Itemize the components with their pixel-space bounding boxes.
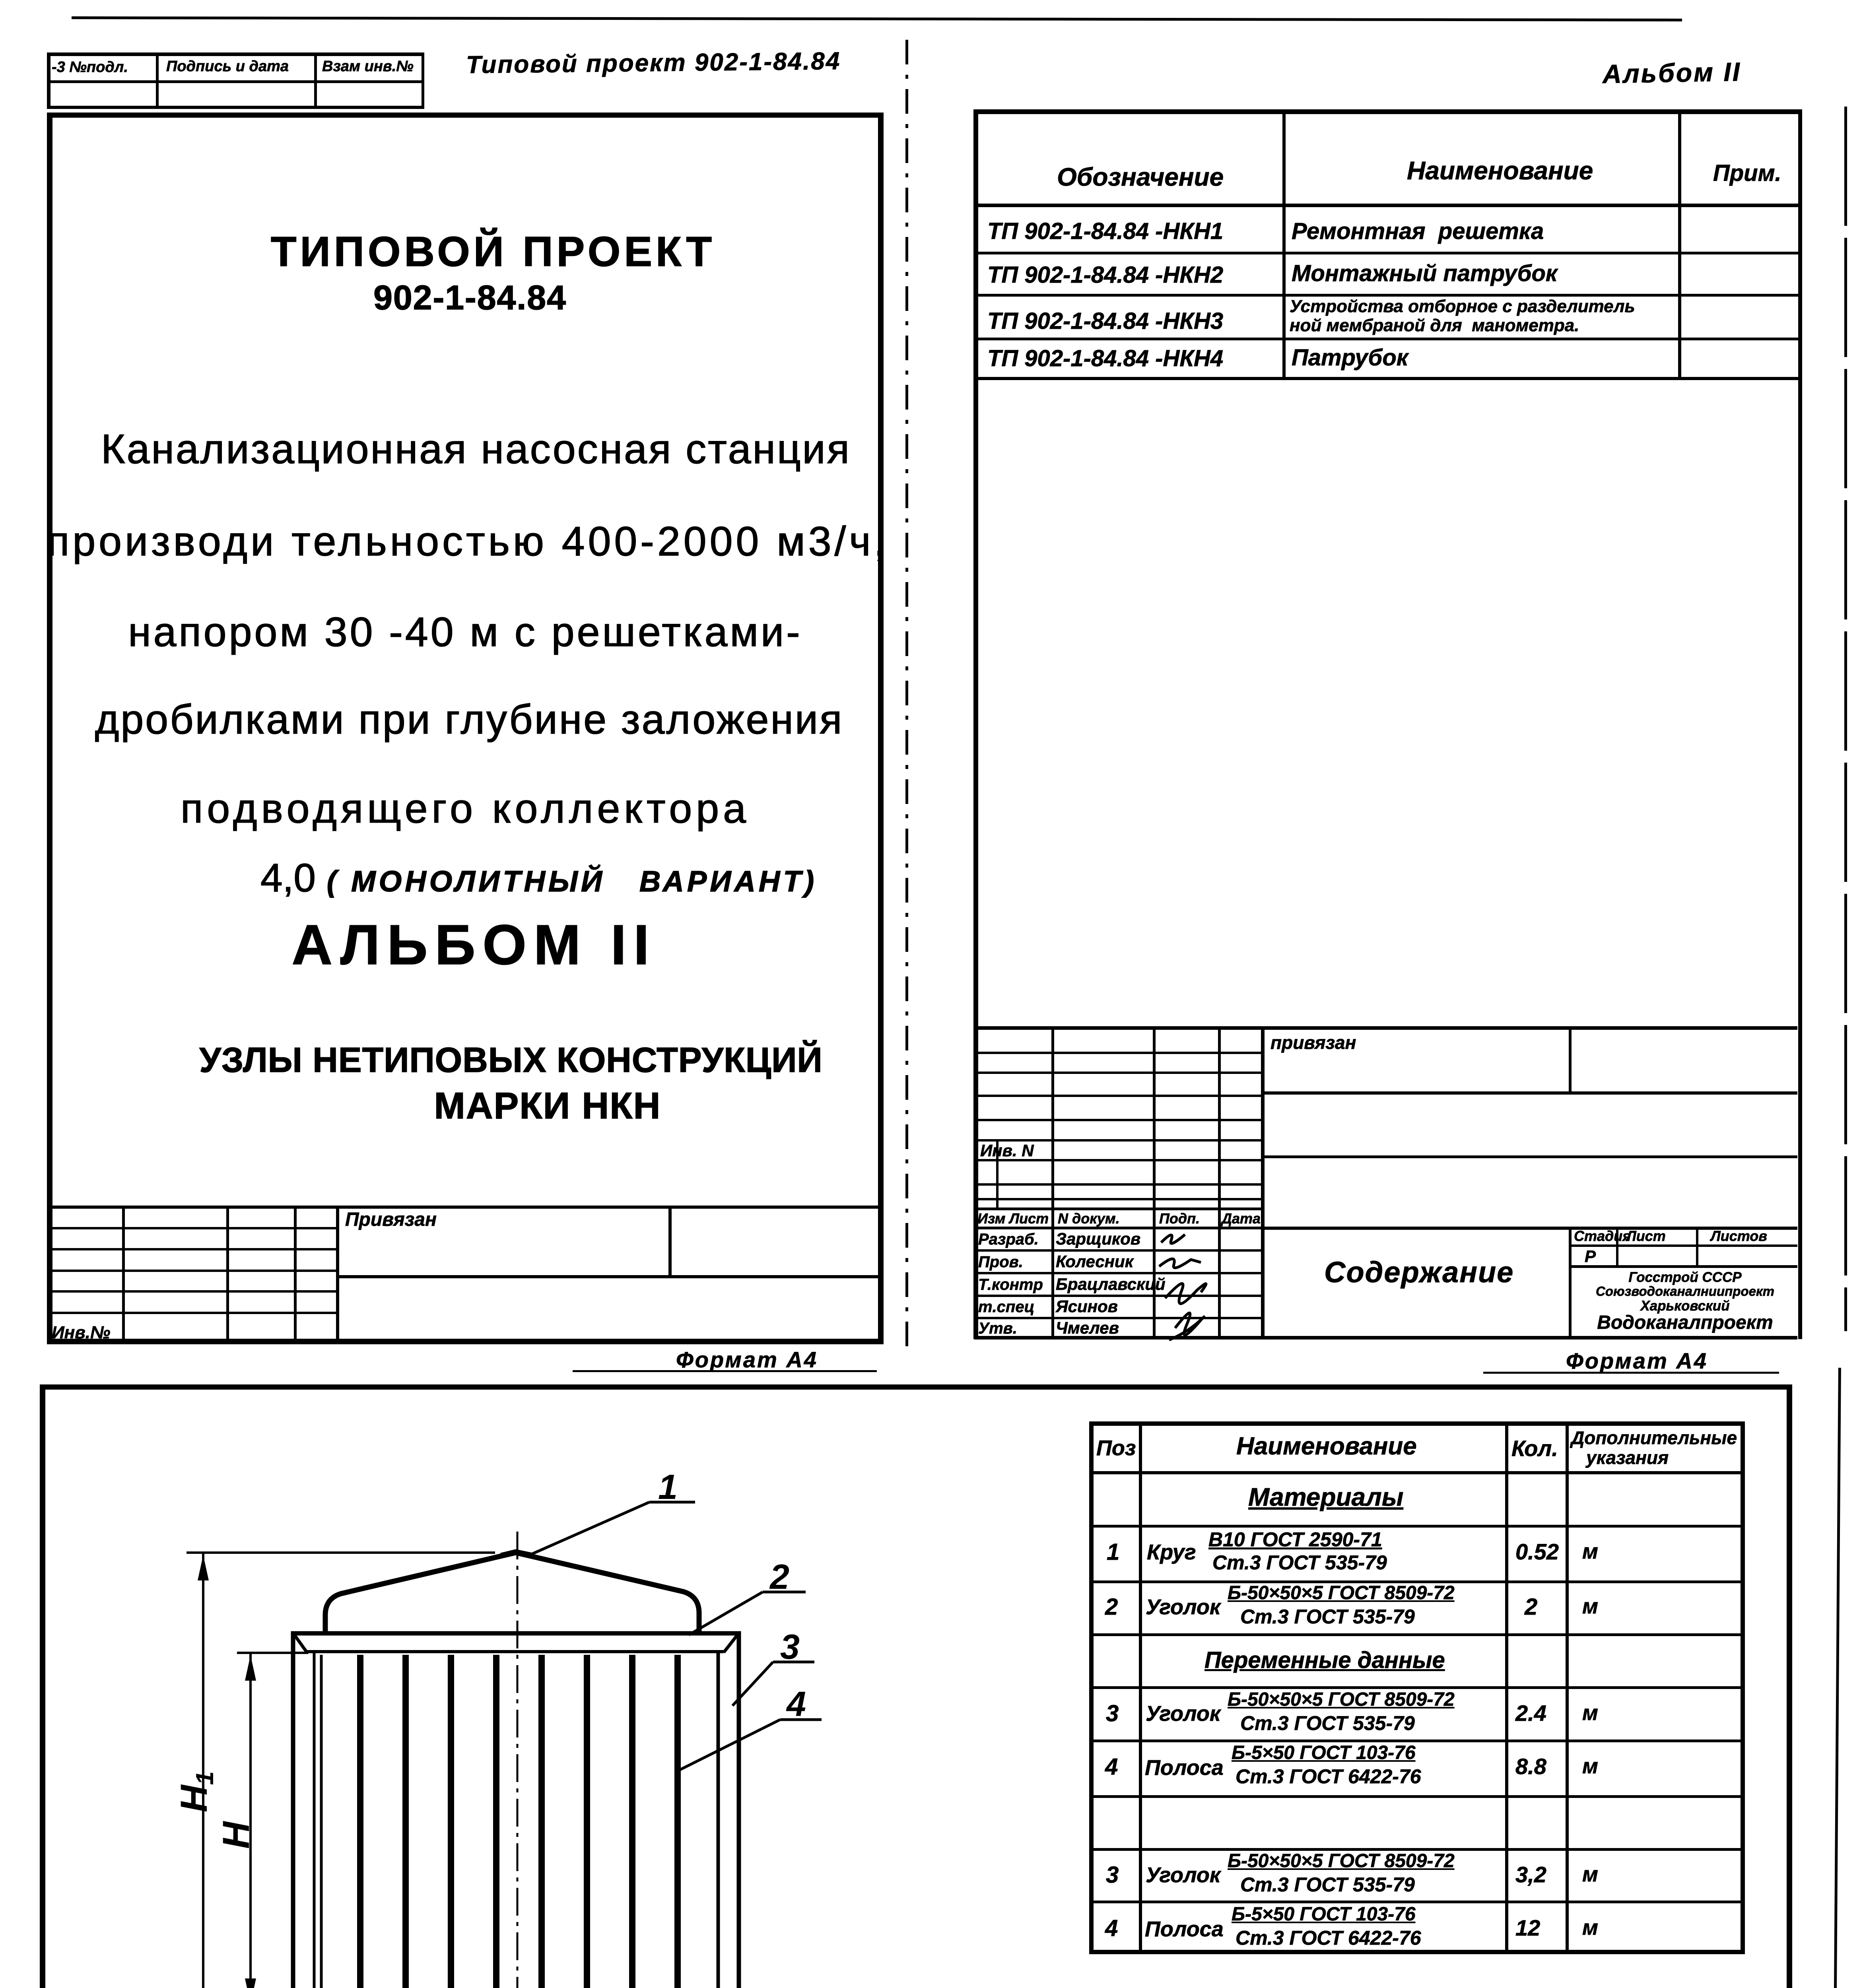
svg-text:Н: Н: [215, 1821, 257, 1849]
svg-text:Н1: Н1: [173, 1771, 219, 1812]
svg-text:4: 4: [786, 1684, 806, 1724]
svg-text:2: 2: [769, 1557, 789, 1596]
svg-text:3: 3: [780, 1627, 800, 1666]
svg-text:1: 1: [658, 1467, 678, 1507]
